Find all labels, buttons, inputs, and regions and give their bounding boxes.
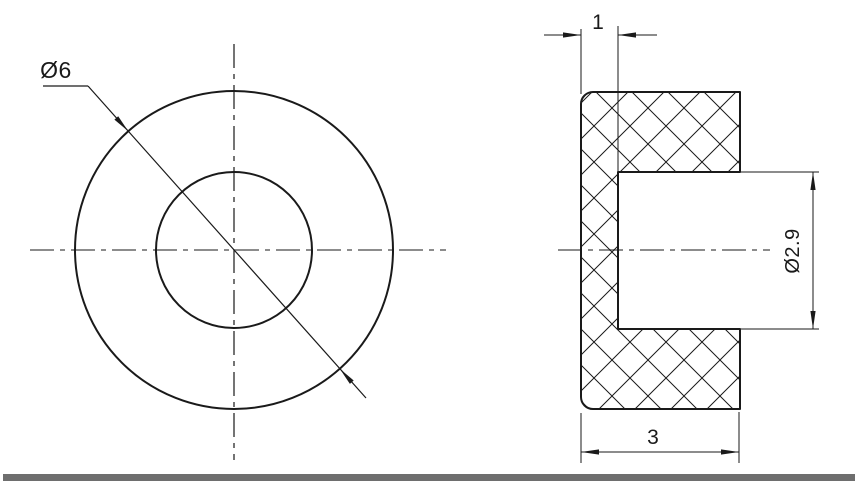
arrowhead-icon <box>721 449 739 454</box>
arrowhead-icon <box>563 32 581 37</box>
arrowhead-icon <box>114 116 128 131</box>
arrowhead-icon <box>581 449 599 454</box>
wall-thickness-label: 1 <box>592 11 604 34</box>
front-view: Ø6 <box>30 44 446 460</box>
technical-drawing-page: Ø6 1 <box>0 0 861 492</box>
overall-length-dimension: 3 <box>581 412 739 463</box>
bore-diameter-label: Ø2.9 <box>782 228 804 273</box>
bottom-separator-bar <box>3 474 855 481</box>
bore-diameter-dimension: Ø2.9 <box>740 172 819 329</box>
section-view: 1 Ø2.9 3 <box>544 11 819 463</box>
overall-length-label: 3 <box>647 426 659 449</box>
arrowhead-icon <box>810 172 815 190</box>
outer-diameter-dimension: Ø6 <box>40 57 366 398</box>
arrowhead-icon <box>618 32 636 37</box>
leader-diagonal-line <box>88 86 366 398</box>
arrowhead-icon <box>810 311 815 329</box>
outer-diameter-label: Ø6 <box>40 57 72 83</box>
drawing-svg: Ø6 1 <box>0 0 861 492</box>
arrowhead-icon <box>340 369 354 384</box>
